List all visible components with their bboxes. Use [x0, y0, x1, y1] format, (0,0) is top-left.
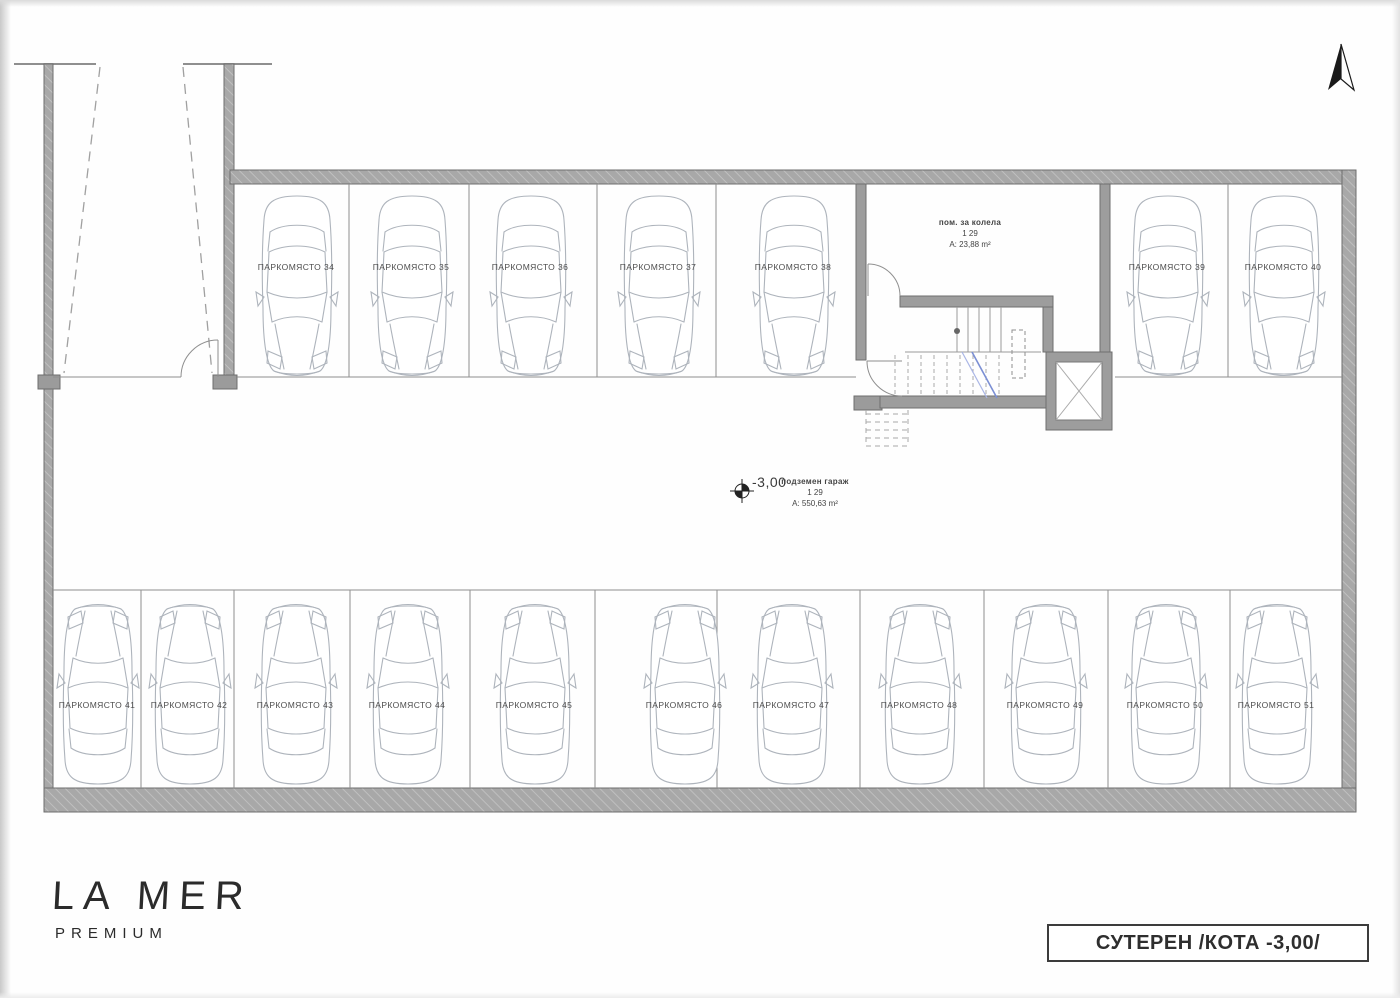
parking-space-label: ПАРКОМЯСТО 45 [464, 700, 604, 710]
car-icon [1127, 196, 1209, 376]
bike-room-number: 1 29 [880, 228, 1060, 239]
floor-plan-page: ПАРКОМЯСТО 34 ПАРКОМЯСТО 35 ПАРКОМЯСТО 3… [0, 0, 1400, 998]
bike-room-door [868, 264, 900, 296]
bike-room-label: пом. за колела 1 29 А: 23,88 m² [880, 217, 1060, 250]
car-icon [149, 605, 231, 785]
parking-space-label: ПАРКОМЯСТО 49 [975, 700, 1115, 710]
floor-plan-drawing [0, 0, 1400, 998]
entrance-ramp [64, 67, 212, 373]
bike-room-name: пом. за колела [880, 217, 1060, 228]
car-icon [879, 605, 961, 785]
parking-space-label: ПАРКОМЯСТО 38 [723, 262, 863, 272]
title-block: СУТЕРЕН /КОТА -3,00/ [1047, 924, 1369, 962]
parking-space-label: ПАРКОМЯСТО 48 [849, 700, 989, 710]
car-icon [1125, 605, 1207, 785]
logo-title: LA MER [51, 874, 254, 919]
parking-space-label: ПАРКОМЯСТО 36 [460, 262, 600, 272]
north-arrow-icon [1328, 44, 1354, 90]
garage-entry-door [53, 340, 218, 377]
level-marker-icon [730, 479, 754, 503]
parking-space-label: ПАРКОМЯСТО 40 [1213, 262, 1353, 272]
car-icon [57, 605, 139, 785]
bike-room-area: А: 23,88 m² [880, 239, 1060, 250]
lower-flight-dashed-steps [866, 410, 908, 446]
parking-space-label: ПАРКОМЯСТО 44 [337, 700, 477, 710]
car-icon [256, 196, 338, 376]
parking-space-label: ПАРКОМЯСТО 37 [588, 262, 728, 272]
garage-room-label: подземен гараж 1 29 А: 550,63 m² [760, 476, 870, 509]
car-icon [753, 196, 835, 376]
elevator-shaft [1046, 352, 1112, 430]
wall-footings [38, 375, 882, 410]
car-icon [644, 605, 726, 785]
logo: LA MER PREMIUM [52, 874, 253, 942]
drawing-title: СУТЕРЕН /КОТА -3,00/ [1096, 932, 1320, 955]
parking-space-label: ПАРКОМЯСТО 51 [1206, 700, 1346, 710]
car-icon [367, 605, 449, 785]
car-icon [1005, 605, 1087, 785]
garage-room-area: А: 550,63 m² [760, 498, 870, 509]
garage-room-number: 1 29 [760, 487, 870, 498]
car-icon [1236, 605, 1318, 785]
stair-direction-arrow [962, 352, 997, 398]
car-icons-bottom-row [57, 605, 1318, 785]
car-icon [1243, 196, 1325, 376]
car-icon [490, 196, 572, 376]
car-icon [371, 196, 453, 376]
car-icon [255, 605, 337, 785]
car-icons-top-row [256, 196, 1325, 376]
garage-room-name: подземен гараж [760, 476, 870, 487]
staircase [895, 307, 1041, 396]
stairwell-door [867, 361, 902, 396]
logo-subtitle: PREMIUM [55, 925, 253, 942]
car-icon [494, 605, 576, 785]
car-icon [751, 605, 833, 785]
car-icon [618, 196, 700, 376]
parking-space-label: ПАРКОМЯСТО 47 [721, 700, 861, 710]
